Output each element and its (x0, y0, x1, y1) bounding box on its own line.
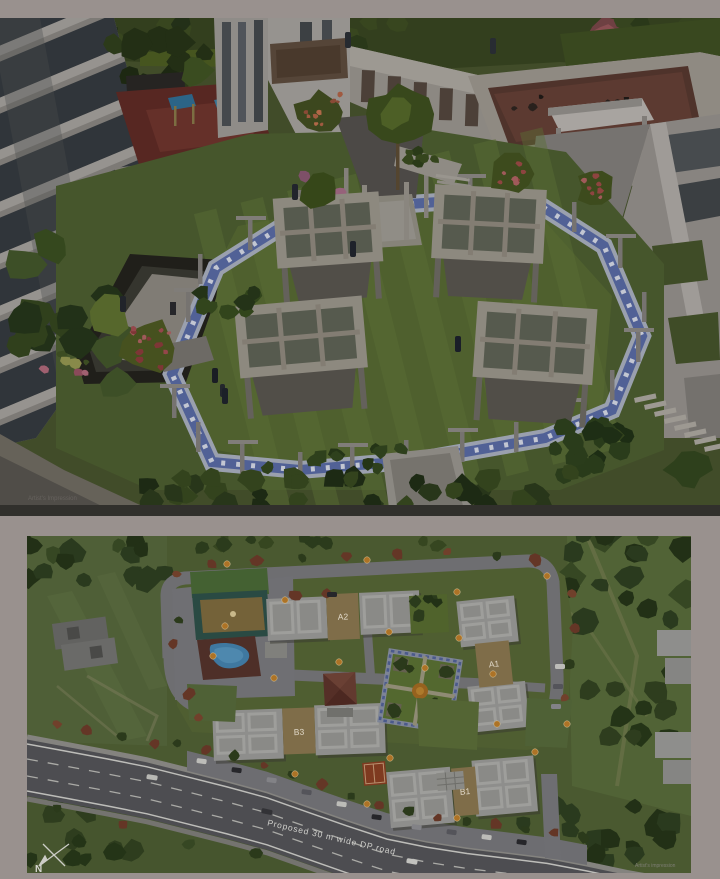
svg-text:A2: A2 (338, 611, 349, 621)
svg-text:A1: A1 (488, 658, 500, 669)
svg-text:N: N (35, 864, 42, 873)
svg-text:Artist's Impression: Artist's Impression (28, 496, 77, 502)
svg-text:B3: B3 (294, 727, 305, 737)
svg-text:Artist's impression: Artist's impression (635, 863, 676, 869)
